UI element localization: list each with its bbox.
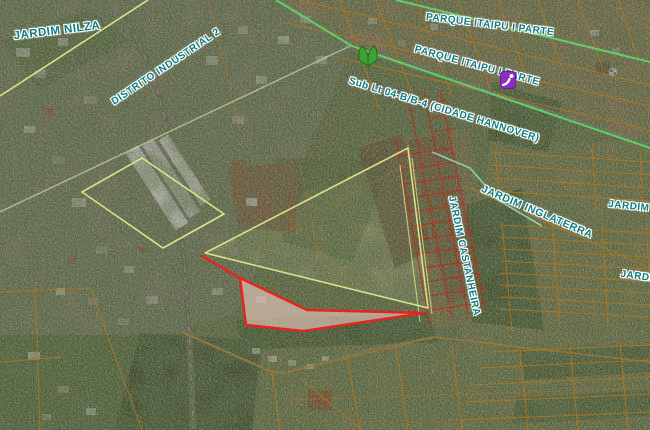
- map-canvas[interactable]: JARDIM NILZA DISTRITO INDUSTRIAL 2 PARQU…: [0, 0, 650, 430]
- satellite-imagery: [0, 0, 650, 430]
- texture-overlay: [0, 0, 650, 430]
